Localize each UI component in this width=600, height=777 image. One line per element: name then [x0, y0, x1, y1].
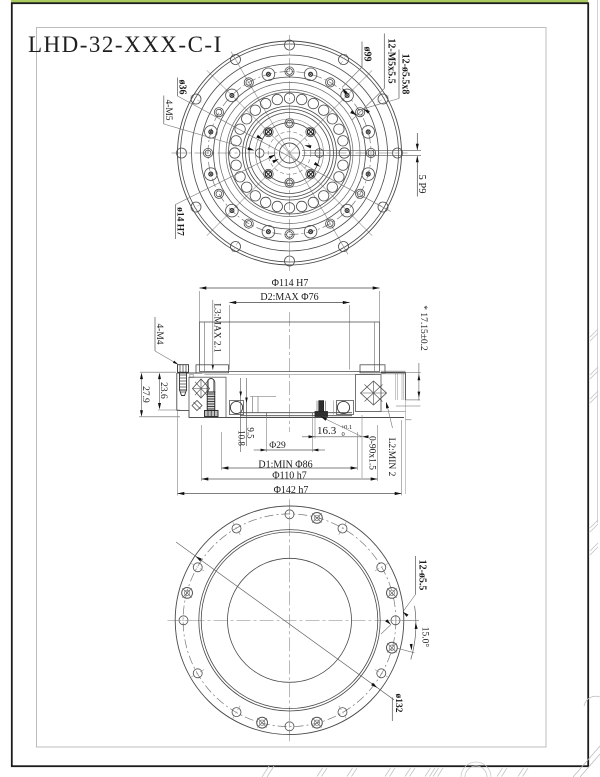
svg-text:0-90x1.5: 0-90x1.5	[367, 436, 377, 470]
svg-text:4-M5: 4-M5	[163, 99, 173, 120]
svg-text:D2:MAX Φ76: D2:MAX Φ76	[260, 292, 318, 303]
svg-text:Φ29: Φ29	[269, 441, 286, 451]
svg-text:Φ110 h7: Φ110 h7	[272, 470, 306, 481]
svg-text:D1:MIN Φ86: D1:MIN Φ86	[258, 459, 312, 470]
svg-text:Φ114 H7: Φ114 H7	[272, 278, 309, 289]
svg-text:ø132: ø132	[393, 694, 403, 713]
svg-text:27.9: 27.9	[140, 386, 150, 403]
svg-text:10.8: 10.8	[237, 430, 247, 446]
svg-text:4-M4: 4-M4	[154, 323, 164, 344]
svg-text:L2:MIN 2: L2:MIN 2	[386, 438, 396, 477]
svg-text:12-ø5.5x8: 12-ø5.5x8	[400, 54, 411, 95]
svg-text:12-M5x5.5: 12-M5x5.5	[386, 38, 397, 83]
svg-text:12-ø5.5: 12-ø5.5	[417, 560, 428, 591]
svg-text:Φ142 h7: Φ142 h7	[274, 485, 309, 496]
svg-text:16.3: 16.3	[317, 425, 337, 437]
svg-text:15.0°: 15.0°	[420, 627, 431, 648]
svg-text:23.6: 23.6	[158, 382, 168, 399]
svg-text:0: 0	[342, 431, 345, 438]
svg-text:5 P9: 5 P9	[416, 175, 427, 194]
svg-text:ø36: ø36	[177, 80, 188, 95]
svg-text:* 17.15±0.2: * 17.15±0.2	[418, 305, 428, 351]
svg-text:+0.1: +0.1	[341, 424, 353, 431]
svg-text:ø99: ø99	[362, 47, 373, 62]
svg-text:ø14 H7: ø14 H7	[175, 207, 185, 236]
svg-text:LHD-32-XXX-C-I: LHD-32-XXX-C-I	[28, 32, 223, 57]
